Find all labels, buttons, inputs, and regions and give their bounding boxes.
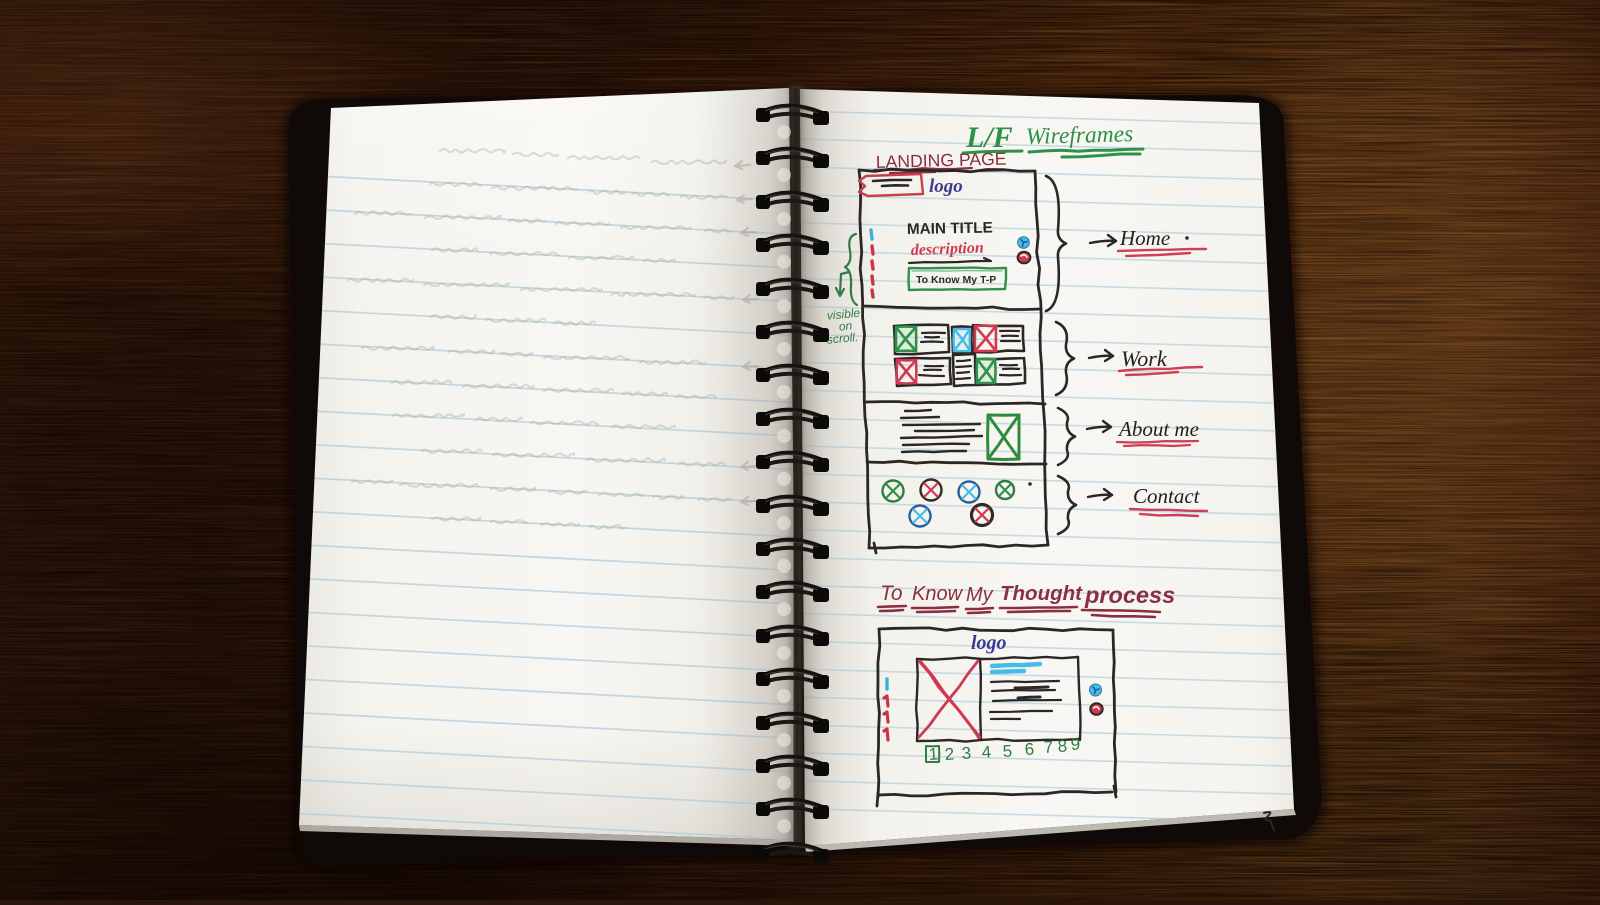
svg-text:1: 1 xyxy=(928,745,938,764)
svg-text:logo: logo xyxy=(971,632,1007,654)
svg-text:About me: About me xyxy=(1117,417,1199,441)
svg-text:4: 4 xyxy=(981,743,991,762)
svg-text:To Know My T-P: To Know My T-P xyxy=(916,274,996,286)
svg-text:MAIN TITLE: MAIN TITLE xyxy=(907,220,993,238)
svg-text:Know: Know xyxy=(912,583,964,605)
svg-text:Wireframes: Wireframes xyxy=(1025,121,1133,150)
svg-text:scroll.: scroll. xyxy=(826,330,858,347)
svg-text:7: 7 xyxy=(1043,738,1053,757)
svg-text:3: 3 xyxy=(961,744,971,763)
svg-text:6: 6 xyxy=(1024,740,1034,759)
svg-text:Contact: Contact xyxy=(1133,484,1201,508)
svg-text:Home: Home xyxy=(1119,226,1170,250)
svg-text:5: 5 xyxy=(1002,742,1012,761)
svg-text:9: 9 xyxy=(1070,735,1080,754)
svg-text:2: 2 xyxy=(944,745,954,764)
svg-text:logo: logo xyxy=(929,176,963,197)
svg-text:My: My xyxy=(966,584,994,606)
svg-text:Work: Work xyxy=(1121,346,1168,371)
svg-text:process: process xyxy=(1084,582,1175,608)
svg-text:Thought: Thought xyxy=(1000,582,1083,605)
svg-text:To: To xyxy=(880,582,903,605)
svg-text:8: 8 xyxy=(1057,737,1067,756)
svg-text:description: description xyxy=(911,239,985,259)
